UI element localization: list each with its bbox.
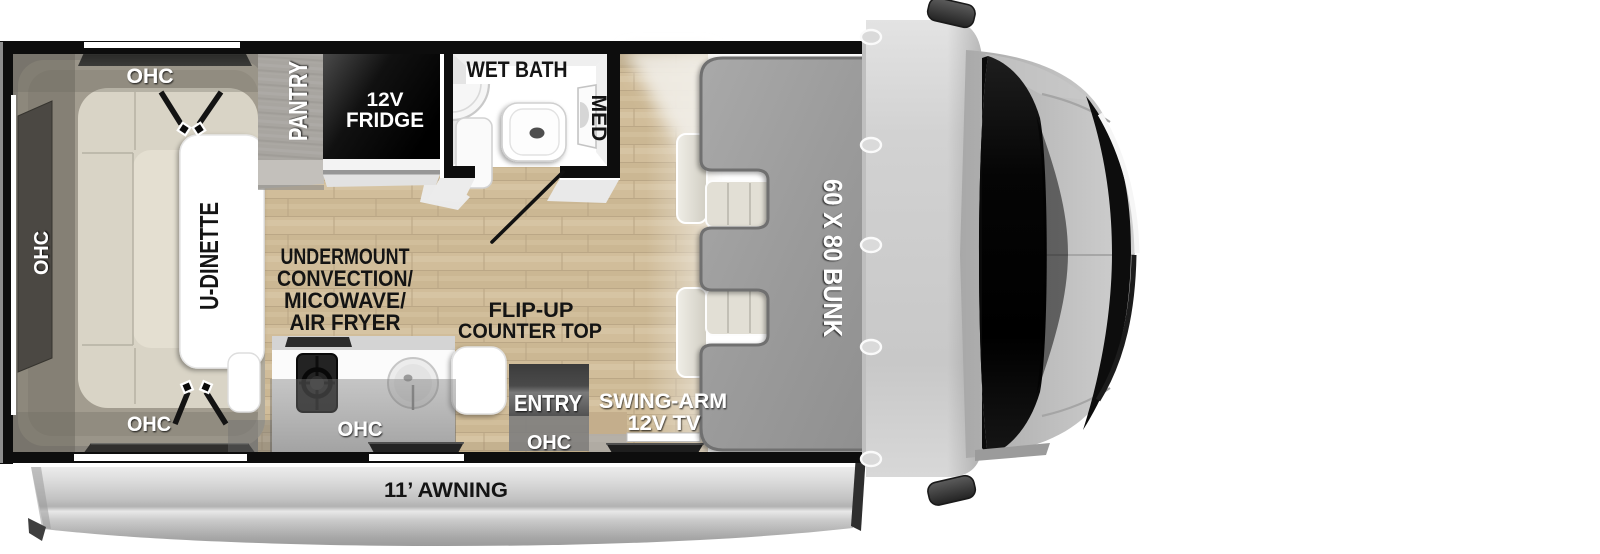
- svg-text:FLIP-UP: FLIP-UP: [489, 299, 574, 322]
- svg-text:AIR FRYER: AIR FRYER: [290, 310, 401, 335]
- svg-text:60 X 80 BUNK: 60 X 80 BUNK: [818, 179, 848, 337]
- svg-text:OHC: OHC: [338, 417, 383, 441]
- svg-text:11’ AWNING: 11’ AWNING: [384, 479, 508, 502]
- svg-text:U-DINETTE: U-DINETTE: [194, 202, 224, 310]
- svg-text:FRIDGE: FRIDGE: [346, 109, 424, 132]
- svg-text:ENTRY: ENTRY: [514, 390, 582, 416]
- svg-text:OHC: OHC: [127, 65, 174, 88]
- svg-text:OHC: OHC: [527, 432, 571, 454]
- svg-text:WET BATH: WET BATH: [467, 57, 568, 82]
- svg-text:PANTRY: PANTRY: [283, 61, 313, 141]
- svg-text:COUNTER TOP: COUNTER TOP: [458, 320, 602, 343]
- svg-text:OHC: OHC: [31, 231, 53, 275]
- svg-text:12V TV: 12V TV: [628, 412, 701, 435]
- svg-text:12V: 12V: [367, 90, 404, 111]
- svg-text:SWING-ARM: SWING-ARM: [599, 390, 727, 413]
- svg-text:MED: MED: [587, 95, 610, 142]
- svg-text:OHC: OHC: [127, 413, 171, 436]
